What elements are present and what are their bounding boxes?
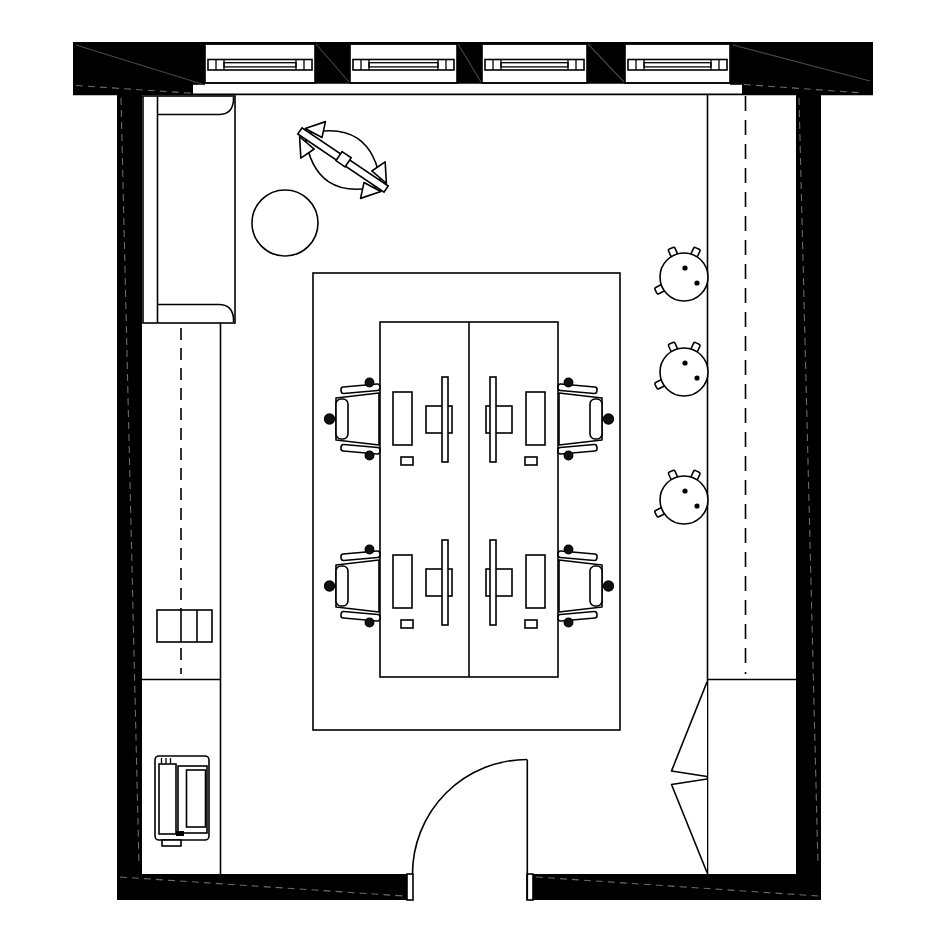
printer bbox=[155, 756, 209, 846]
desk-bench bbox=[380, 322, 558, 677]
door-jamb bbox=[407, 874, 413, 900]
wall-notch-right bbox=[730, 85, 742, 95]
wall-left bbox=[117, 95, 142, 900]
wall-notch-left bbox=[193, 85, 205, 95]
sofa bbox=[143, 96, 235, 323]
drawer-cabinet bbox=[157, 610, 212, 642]
floor-plan-canvas bbox=[0, 0, 945, 945]
floor-plan-drawing bbox=[0, 0, 945, 945]
wall-bottom-left bbox=[117, 874, 407, 900]
side-table bbox=[252, 190, 318, 256]
wall-bottom-right bbox=[533, 874, 821, 900]
